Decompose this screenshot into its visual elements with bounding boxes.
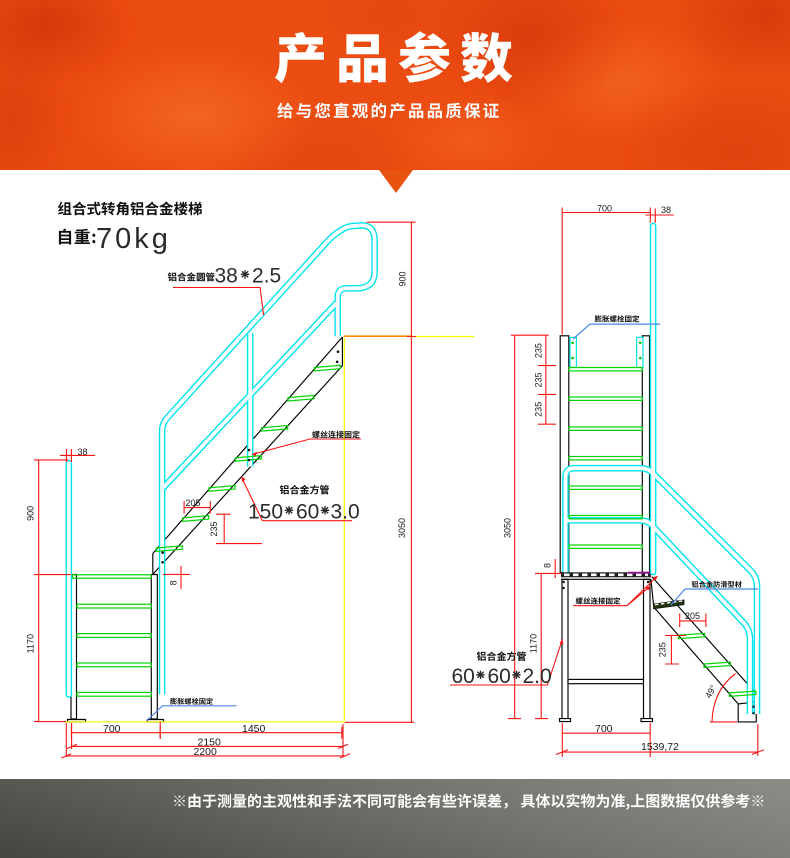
svg-text:70kg: 70kg <box>96 223 171 255</box>
svg-text:60: 60 <box>488 665 511 688</box>
svg-text:60: 60 <box>296 501 319 524</box>
svg-text:2200: 2200 <box>194 746 218 758</box>
svg-text:3.0: 3.0 <box>331 501 360 524</box>
svg-text:8: 8 <box>169 580 179 585</box>
svg-text:235: 235 <box>658 642 668 657</box>
svg-text:1450: 1450 <box>242 723 266 735</box>
svg-text:205: 205 <box>685 611 700 621</box>
svg-text:900: 900 <box>26 506 36 521</box>
svg-text:205: 205 <box>186 498 201 508</box>
svg-text:8: 8 <box>543 563 553 568</box>
svg-text:1539,72: 1539,72 <box>641 741 679 753</box>
svg-text:700: 700 <box>595 723 613 735</box>
svg-text:38: 38 <box>78 447 88 457</box>
svg-text:3050: 3050 <box>503 518 513 538</box>
svg-text:235: 235 <box>533 372 543 387</box>
svg-text:150: 150 <box>248 501 283 524</box>
svg-text:60: 60 <box>452 665 475 688</box>
svg-text:235: 235 <box>533 402 543 417</box>
svg-text:235: 235 <box>533 343 543 358</box>
svg-text:1170: 1170 <box>26 634 36 653</box>
svg-text:38: 38 <box>661 205 671 215</box>
svg-text:2.0: 2.0 <box>523 665 552 688</box>
svg-text:2.5: 2.5 <box>252 265 281 288</box>
svg-text:235: 235 <box>209 521 219 536</box>
svg-text:700: 700 <box>103 723 121 735</box>
svg-text:700: 700 <box>597 204 612 214</box>
svg-text:3050: 3050 <box>397 518 407 538</box>
svg-text:1170: 1170 <box>528 634 538 653</box>
svg-text:38: 38 <box>215 265 238 288</box>
svg-text:900: 900 <box>398 271 408 286</box>
